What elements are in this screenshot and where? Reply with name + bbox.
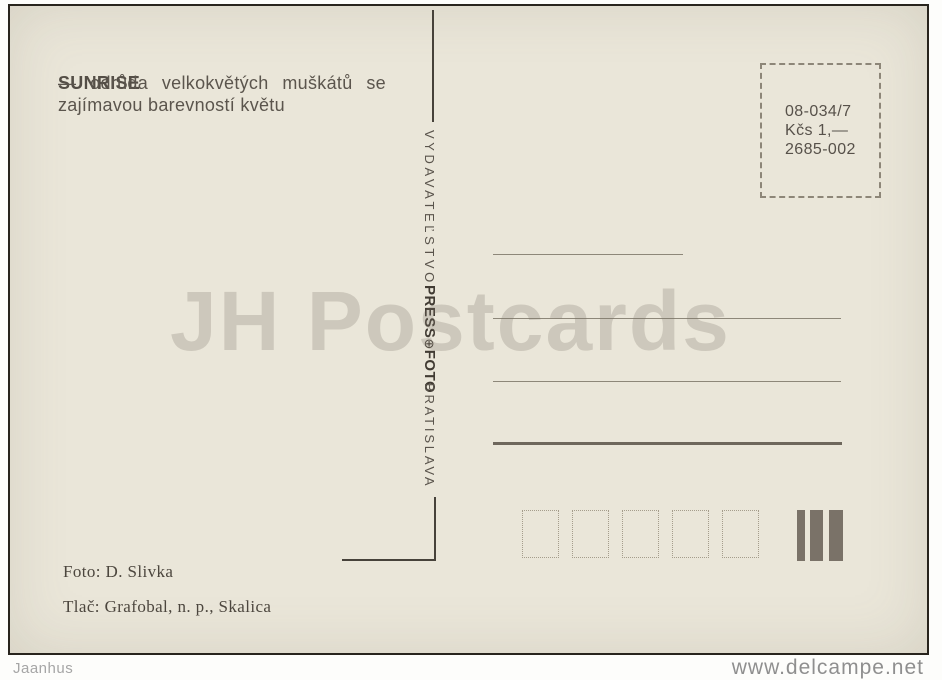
caption-description: — odrůda velkokvětých muškátů se zajímav…	[58, 72, 386, 116]
photo-credit: Foto: D. Slivka	[63, 562, 173, 582]
postal-code-box	[572, 510, 609, 558]
pressfoto-globe-icon: ⊕	[422, 338, 437, 349]
postal-code-box	[722, 510, 759, 558]
delcampe-link[interactable]: www.delcampe.net	[732, 656, 924, 680]
postal-code-box	[522, 510, 559, 558]
address-line-4	[493, 442, 842, 445]
address-line-1	[493, 254, 683, 255]
seller-link[interactable]: Jaanhus	[13, 660, 73, 677]
publisher-city: BRATISLAVA	[422, 383, 437, 488]
postal-code-box	[672, 510, 709, 558]
cancellation-bar	[797, 510, 805, 561]
publisher-name: VYDAVATEĽSTVO	[422, 130, 437, 286]
print-credit: Tlač: Grafobal, n. p., Skalica	[63, 597, 271, 617]
stamp-box: 08-034/7 Kčs 1,— 2685-002	[760, 63, 881, 198]
address-line-3	[493, 381, 841, 382]
page: SUNRISE — odrůda velkokvětých muškátů se…	[0, 0, 942, 680]
cancellation-bar	[810, 510, 823, 561]
logo-press-text: PRESS	[421, 285, 438, 338]
postal-code-box	[622, 510, 659, 558]
edition-number: 2685-002	[785, 140, 879, 159]
divider-line-top	[432, 10, 434, 122]
address-line-2	[493, 318, 841, 319]
postcard-scan: SUNRISE — odrůda velkokvětých muškátů se…	[8, 4, 929, 655]
divider-line-bottom	[342, 497, 436, 561]
pressfoto-logo: PRESS⊕FOTO	[421, 285, 438, 393]
catalog-number: 08-034/7	[785, 102, 879, 121]
price: Kčs 1,—	[785, 121, 879, 140]
page-footer: Jaanhus www.delcampe.net	[0, 655, 942, 680]
site-watermark: JH Postcards	[170, 278, 731, 364]
cancellation-bar	[829, 510, 843, 561]
